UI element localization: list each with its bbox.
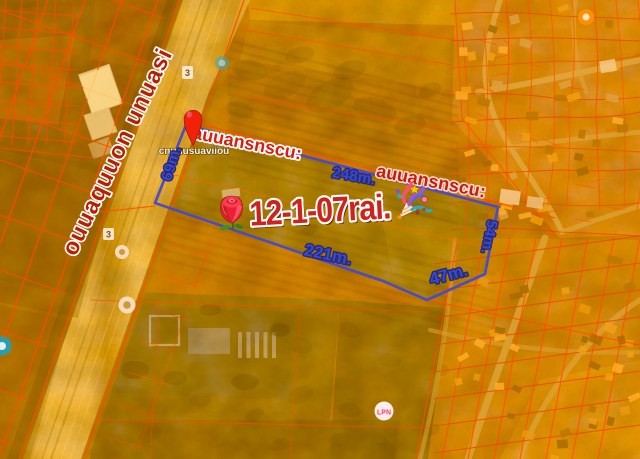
svg-text:3: 3 (106, 230, 111, 240)
svg-text:LPN: LPN (377, 410, 391, 417)
svg-text:3: 3 (185, 68, 190, 78)
svg-text:12-1-07rai.: 12-1-07rai. (248, 186, 391, 233)
